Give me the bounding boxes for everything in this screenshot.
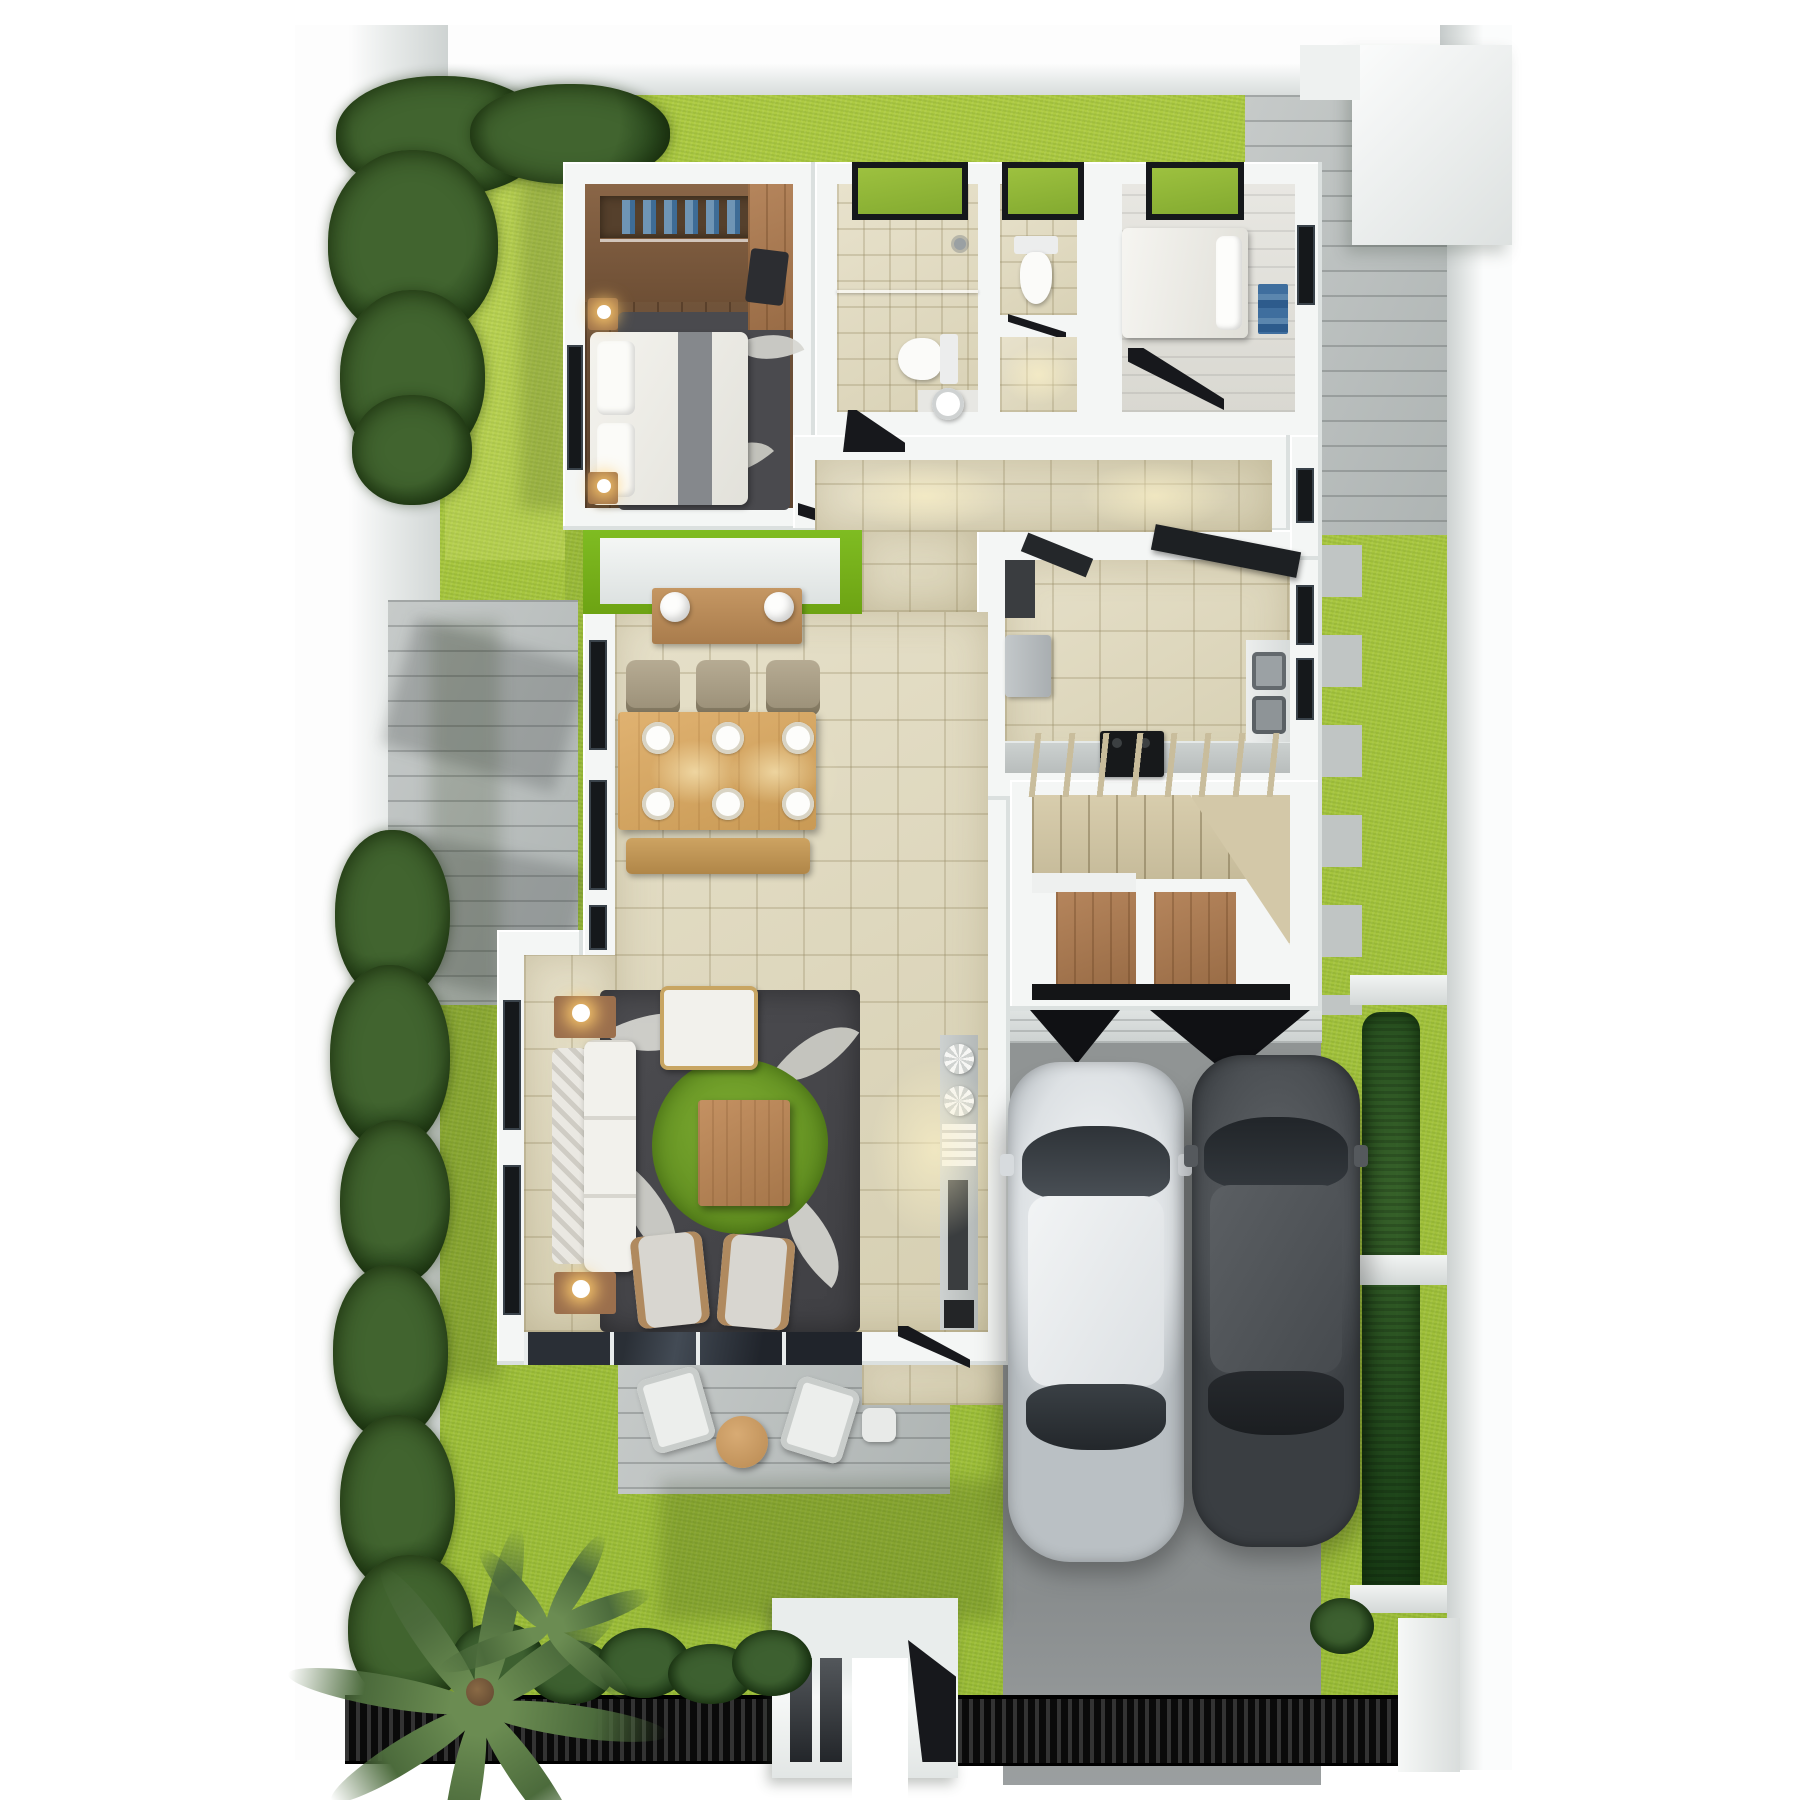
accent-chair <box>629 1230 710 1329</box>
sofa-back-cushions <box>552 1048 588 1264</box>
master-lamp-icon-2 <box>597 479 611 493</box>
armchair <box>660 986 758 1070</box>
kitchen-sink-2 <box>1252 696 1286 734</box>
hedge-east-screen <box>1362 1012 1420 1612</box>
coffee-table <box>698 1100 790 1206</box>
plate <box>642 722 674 754</box>
pedestrian-walkway <box>852 1658 908 1800</box>
white-car-roof <box>1028 1196 1164 1386</box>
plate-6 <box>782 788 814 820</box>
shower-glass <box>837 290 978 293</box>
dark-car-mirror-icon <box>1184 1145 1198 1167</box>
bedroom2-pillow <box>1216 236 1242 330</box>
powder-toilet-bowl-icon <box>1020 252 1052 304</box>
boundary-wall-right <box>1440 25 1512 1770</box>
decor-box <box>944 1300 974 1328</box>
console-lamp-icon <box>660 592 690 622</box>
corner-structure-step <box>1300 45 1360 100</box>
dark-car-roof <box>1210 1185 1342 1373</box>
master-stool <box>745 248 789 306</box>
dining-chair-2 <box>696 660 750 716</box>
terrace-stool <box>862 1408 896 1442</box>
plate-4 <box>642 788 674 820</box>
shrub-5 <box>732 1630 812 1696</box>
dark-car <box>1192 1055 1360 1547</box>
canopy-window-slot-2 <box>820 1658 842 1762</box>
hanging-clothes <box>622 200 740 234</box>
living-west-window-2 <box>503 1165 521 1315</box>
master-bed-runner <box>678 332 712 505</box>
master-lamp-icon <box>597 305 611 319</box>
console-lamp-icon-2 <box>764 592 794 622</box>
wash-basin-icon <box>932 388 964 420</box>
toilet-tank <box>940 334 958 384</box>
corridor-light-pool-2 <box>1080 462 1230 530</box>
hedge-northwest-5 <box>352 395 472 505</box>
gate-corner-pillar <box>1398 1618 1460 1772</box>
understair-cabinet <box>1056 892 1136 986</box>
hedge-west-4 <box>333 1265 448 1440</box>
bedroom2-window <box>1146 162 1244 220</box>
dining-west-window <box>589 640 607 750</box>
foyer-light-pool <box>870 1060 1000 1240</box>
white-car-mirror-icon <box>1000 1154 1014 1176</box>
entry-porch <box>862 1365 1003 1405</box>
white-car-windshield <box>1022 1126 1170 1200</box>
understair-cabinet-2 <box>1154 892 1236 986</box>
corridor-floor-south <box>862 532 977 612</box>
dining-west-window-2 <box>589 780 607 890</box>
sliding-glass-wall <box>524 1332 862 1365</box>
palm-trunk <box>466 1678 494 1706</box>
floor-plan-canvas <box>0 0 1800 1800</box>
white-car-rear-glass <box>1026 1384 1166 1450</box>
dining-chair <box>626 660 680 716</box>
house-west-shadow <box>430 620 500 1380</box>
dark-car-rear-glass <box>1208 1371 1344 1435</box>
driveway-gate <box>958 1695 1398 1766</box>
kitchen-east-window <box>1296 585 1314 645</box>
bedroom2-towels <box>1258 284 1288 334</box>
hedge-west-3 <box>340 1120 450 1285</box>
sofa-lamp-icon <box>572 1004 590 1022</box>
sofa <box>584 1040 636 1272</box>
plate-5 <box>712 788 744 820</box>
stair-landing <box>1032 873 1136 893</box>
master-bed-pillow <box>597 341 635 415</box>
living-west-window <box>503 1000 521 1130</box>
stepping-stones <box>1322 545 1362 1015</box>
plate-2 <box>712 722 744 754</box>
dark-car-mirror-icon-2 <box>1354 1145 1368 1167</box>
corridor-light-pool <box>840 462 1010 530</box>
refrigerator <box>1005 635 1051 697</box>
sofa-lamp-icon-2 <box>572 1280 590 1298</box>
terrace-table <box>716 1416 768 1468</box>
dining-bench <box>626 838 810 874</box>
understair-counter <box>1032 984 1290 1000</box>
shower-head-icon <box>954 238 966 250</box>
bathroom-window <box>852 162 968 220</box>
corner-structure <box>1352 45 1512 245</box>
dining-chair-3 <box>766 660 820 716</box>
dark-car-windshield <box>1204 1117 1348 1189</box>
wardrobe-glass-shelf <box>600 239 760 242</box>
plate-3 <box>782 722 814 754</box>
dining-west-window-3 <box>589 905 607 950</box>
shrub-6 <box>1310 1598 1374 1654</box>
pergola-beam-1 <box>1350 975 1447 1005</box>
powder-room-window <box>1002 162 1084 220</box>
landing-light-pool <box>1002 345 1075 405</box>
white-car <box>1008 1062 1184 1562</box>
master-west-window <box>567 345 583 470</box>
kitchen-pantry <box>1005 560 1035 618</box>
accent-chair-2 <box>716 1233 796 1331</box>
corridor-east-window <box>1296 468 1314 523</box>
kitchen-sink <box>1252 652 1286 690</box>
stair-railing-posts <box>1029 733 1294 797</box>
toilet-bowl-icon <box>898 338 942 380</box>
bedroom2-east-window <box>1297 225 1315 305</box>
kitchen-east-window-2 <box>1296 658 1314 720</box>
